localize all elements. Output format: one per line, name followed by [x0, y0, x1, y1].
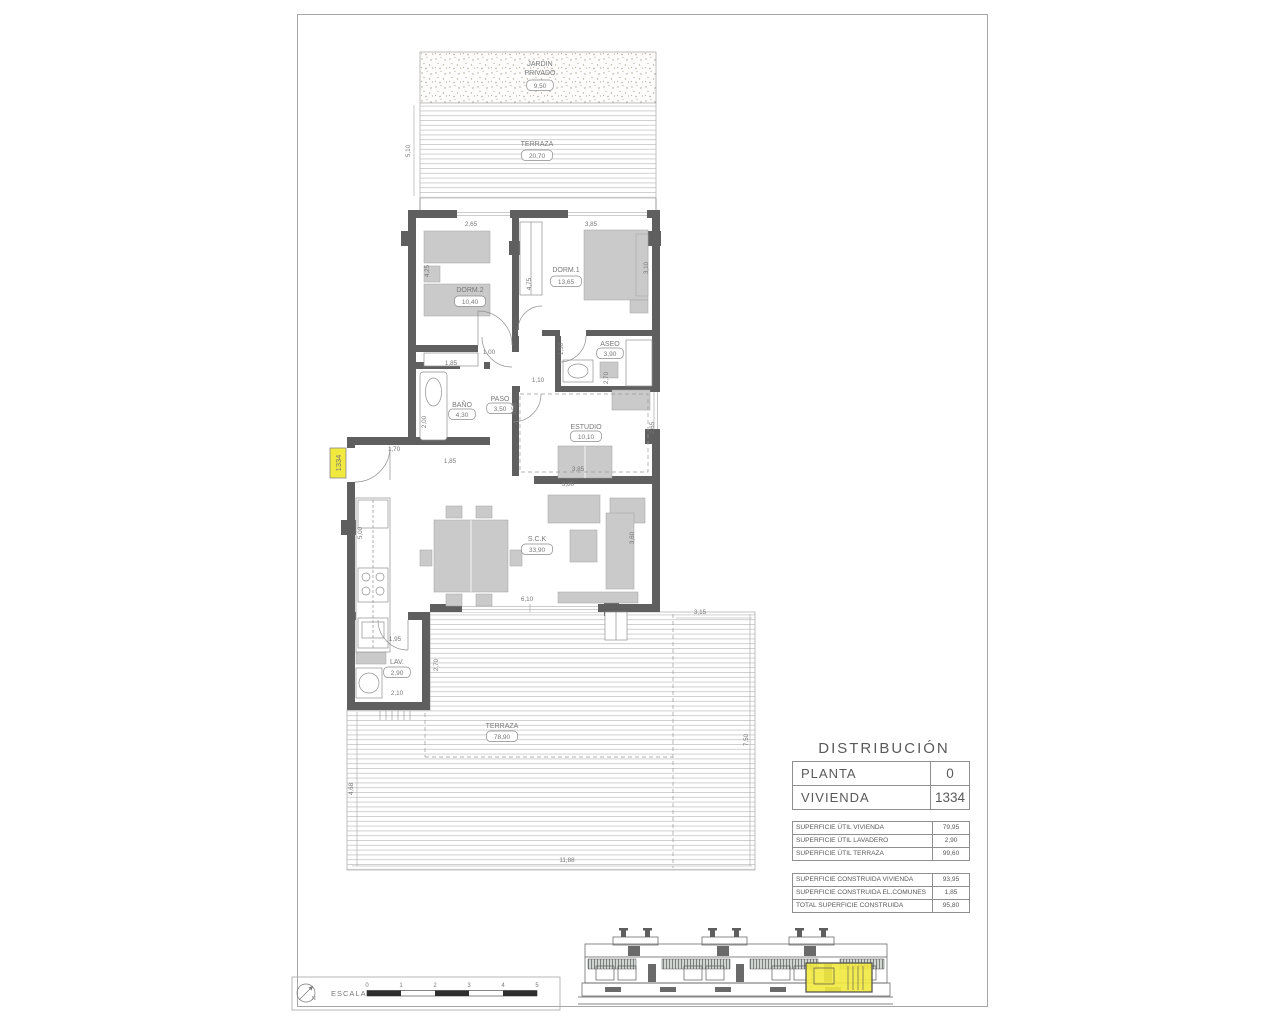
unit-tag: 1334	[330, 448, 346, 478]
scale-bar: N ESCALA : 012345	[292, 977, 560, 1010]
dimension-label: 3,10	[643, 261, 650, 274]
room-area-value: 2,90	[391, 670, 404, 677]
chair	[446, 506, 462, 518]
unit-tag-number: 1334	[334, 455, 343, 472]
dimension-label: 3,85	[585, 221, 598, 228]
built-surface-table: SUPERFICIE CONSTRUIDA VIVIENDA93,95SUPER…	[792, 873, 970, 913]
dimension-label: 2,10	[391, 690, 404, 697]
dimension-label: 1,70	[388, 446, 401, 453]
room-area-value: 10,10	[578, 434, 595, 441]
chimneys-part	[819, 928, 828, 931]
dimension-label: 1,85	[445, 360, 458, 367]
walls-part	[347, 437, 490, 445]
room-area-value: 3,50	[494, 406, 507, 413]
room-name: ESTUDIO	[570, 424, 602, 431]
row-value: 2,90	[932, 835, 969, 847]
walls-part	[422, 612, 430, 710]
room-name: ASEO	[600, 341, 620, 348]
dimension-label: 5,10	[405, 144, 412, 157]
bedroom-bench	[630, 300, 648, 313]
row-label: PLANTA	[793, 762, 930, 785]
room-area-value: 33,90	[529, 547, 546, 554]
table-row: SUPERFICIE CONSTRUIDA VIVIENDA93,95	[793, 874, 969, 887]
wall-openings-part	[457, 210, 510, 218]
chimneys-part	[795, 928, 804, 931]
upper-windows-part	[804, 946, 816, 956]
fixtures-part	[568, 364, 588, 378]
dimension-label: 3,85	[572, 466, 585, 473]
scale-number: 5	[535, 983, 539, 989]
chair	[420, 550, 432, 566]
walls-part	[408, 612, 430, 620]
scale-bar-part	[435, 991, 469, 997]
coffee-table	[570, 530, 597, 562]
planta-vivienda-table: PLANTA0VIVIENDA1334	[792, 761, 970, 810]
dimension-label: 3,60	[629, 531, 636, 544]
room-name: DORM.2	[456, 287, 483, 294]
elevation-doors-part	[605, 987, 621, 992]
chimneys-part	[732, 928, 741, 931]
room-name: TERRAZA	[486, 723, 519, 730]
dimension-label: 2,70	[433, 658, 440, 671]
dimension-label: 5,00	[357, 526, 364, 539]
shower	[626, 340, 652, 386]
useful-surface-table: SUPERFICIE ÚTIL VIVIENDA79,95SUPERFICIE …	[792, 821, 970, 861]
dimension-label: 6,10	[521, 596, 534, 603]
room-name: TERRAZA	[521, 141, 554, 148]
wall-openings-part	[512, 476, 534, 484]
room-name: BAÑO	[452, 400, 472, 409]
dimension-label: 3,15	[694, 609, 707, 616]
wall-markers-part	[401, 231, 416, 246]
chimneys-part	[821, 930, 826, 937]
dimension-label: 1,00	[483, 349, 496, 356]
upper-windows	[628, 946, 816, 956]
row-label: SUPERFICIE ÚTIL TERRAZA	[793, 848, 932, 860]
row-value: 79,95	[932, 822, 969, 834]
chair	[510, 550, 522, 566]
dimension-label: 4,25	[424, 264, 431, 277]
fridge	[358, 500, 388, 528]
dimension-label: 11,88	[559, 857, 575, 864]
chimneys-part	[619, 928, 628, 931]
table-row: SUPERFICIE CONSTRUIDA EL.COMUNES1,85	[793, 887, 969, 900]
room-area-value: 4,30	[456, 412, 469, 419]
chimneys	[619, 928, 828, 937]
chair	[476, 594, 492, 606]
lower-terrace-deck	[347, 612, 755, 870]
table-row: SUPERFICIE ÚTIL TERRAZA99,60	[793, 848, 969, 860]
elevation-doors-part	[770, 987, 786, 992]
scale-bar-part	[367, 991, 401, 997]
elevation-doors-part	[715, 987, 731, 992]
sofa	[606, 513, 634, 589]
table-row: TOTAL SUPERFICIE CONSTRUIDA95,80	[793, 900, 969, 912]
upper-windows-part	[628, 946, 640, 956]
dimension-label: 2,00	[421, 415, 428, 428]
scale-number: 1	[399, 983, 403, 989]
scale-number: 4	[501, 983, 505, 989]
dimension-label: 3,80	[562, 481, 575, 488]
highlighted-unit-part	[806, 963, 872, 992]
dimension-label: 1,50	[558, 342, 565, 355]
drawing-sheet: 1334 JARDINPRIVADO9,50TERRAZA20,70DORM.2…	[0, 0, 1280, 1024]
dimension-label: 7,50	[743, 733, 750, 746]
fixtures-part	[426, 378, 442, 406]
dimension-label: 4,68	[348, 782, 355, 795]
fixtures-part	[359, 673, 379, 693]
wall-openings-part	[560, 330, 586, 336]
floor-plan-drawing: 1334 JARDINPRIVADO9,50TERRAZA20,70DORM.2…	[0, 0, 1280, 1024]
dimension-label: 2,65	[649, 421, 656, 434]
chimneys-part	[797, 930, 802, 937]
row-value: 99,60	[932, 848, 969, 860]
chimneys-part	[643, 928, 652, 931]
chimneys-part	[734, 930, 739, 937]
fixtures-part	[362, 587, 370, 595]
row-value: 1,85	[932, 887, 969, 899]
elevation-doors-part	[660, 987, 676, 992]
fixtures-part	[376, 573, 384, 581]
balcony-railings-part	[662, 959, 730, 969]
walls-part	[555, 330, 561, 392]
chimneys-part	[710, 930, 715, 937]
row-label: SUPERFICIE CONSTRUIDA EL.COMUNES	[793, 887, 932, 899]
distribution-title: DISTRIBUCIÓN	[798, 740, 970, 757]
room-name: S.C.K	[528, 536, 547, 543]
row-value: 95,80	[932, 900, 969, 912]
fixtures-part	[376, 587, 384, 595]
garden-area	[420, 52, 656, 103]
row-label: SUPERFICIE CONSTRUIDA VIVIENDA	[793, 874, 932, 886]
elevation-doors-part	[648, 964, 656, 982]
scale-label: ESCALA :	[331, 989, 372, 998]
row-value: 1334	[930, 786, 969, 809]
tv-sideboard	[548, 495, 600, 523]
fixtures-part	[362, 573, 370, 581]
dimension-label: 2,65	[465, 221, 478, 228]
chair	[476, 506, 492, 518]
row-value: 0	[930, 762, 969, 785]
row-label: VIVIENDA	[793, 786, 930, 809]
dorm1-door-arc	[518, 306, 542, 330]
row-label: SUPERFICIE ÚTIL VIVIENDA	[793, 822, 932, 834]
room-name: PASO	[491, 396, 510, 403]
entrance-door-arc	[355, 447, 390, 482]
private-garden	[420, 52, 656, 103]
dimension-label: 1,85	[444, 458, 457, 465]
low-cabinet	[558, 592, 638, 603]
dimension-label: 1,10	[532, 377, 545, 384]
scale-bar-part	[503, 991, 537, 997]
table-row: PLANTA0	[793, 762, 969, 786]
row-label: SUPERFICIE ÚTIL LAVADERO	[793, 835, 932, 847]
wall-openings-part	[568, 210, 647, 218]
lower-terrace	[347, 612, 755, 870]
walls-part	[347, 445, 355, 710]
upper-windows-part	[717, 946, 729, 956]
scale-number: 3	[467, 983, 471, 989]
room-name: JARDIN	[527, 61, 552, 68]
table-row: VIVIENDA1334	[793, 786, 969, 809]
room-name: LAV.	[390, 659, 404, 666]
room-area-value: 9,50	[534, 83, 547, 90]
row-value: 93,95	[932, 874, 969, 886]
bed-single-1	[424, 231, 490, 263]
dimension-label: 1,95	[389, 636, 402, 643]
chair	[446, 594, 462, 606]
wall-openings-part	[520, 386, 555, 392]
balcony-railings-part	[588, 959, 636, 969]
elevation-doors-part	[736, 964, 744, 982]
room-area-value: 13,65	[558, 279, 575, 286]
dimension-label: 2,70	[603, 371, 610, 384]
room-name: PRIVADO	[525, 70, 557, 77]
highlighted-unit	[806, 963, 872, 992]
wall-openings-part	[347, 448, 355, 482]
row-label: TOTAL SUPERFICIE CONSTRUIDA	[793, 900, 932, 912]
building-elevation	[578, 928, 893, 1004]
walls-part	[347, 702, 430, 710]
scale-number: 2	[433, 983, 437, 989]
chimneys-part	[708, 928, 717, 931]
lav-shelf	[356, 652, 386, 664]
room-area-value: 3,90	[604, 351, 617, 358]
wall-openings-part	[518, 330, 542, 336]
chimneys-part	[645, 930, 650, 937]
dimension-label: 3,50	[511, 402, 518, 415]
north-label: N	[312, 996, 316, 1002]
estudio-shelf	[612, 390, 650, 410]
dimension-label: 4,75	[526, 277, 533, 290]
chimneys-part	[621, 930, 626, 937]
room-area-value: 20,70	[529, 153, 546, 160]
table-row: SUPERFICIE ÚTIL LAVADERO2,90	[793, 835, 969, 848]
wall-markers-part	[341, 520, 356, 535]
scale-numbers: 012345	[365, 983, 539, 989]
table-row: SUPERFICIE ÚTIL VIVIENDA79,95	[793, 822, 969, 835]
room-area-value: 78,90	[494, 734, 511, 741]
walls-part	[512, 218, 519, 352]
room-area-value: 10,40	[462, 299, 479, 306]
room-name: DORM.1	[552, 267, 579, 274]
